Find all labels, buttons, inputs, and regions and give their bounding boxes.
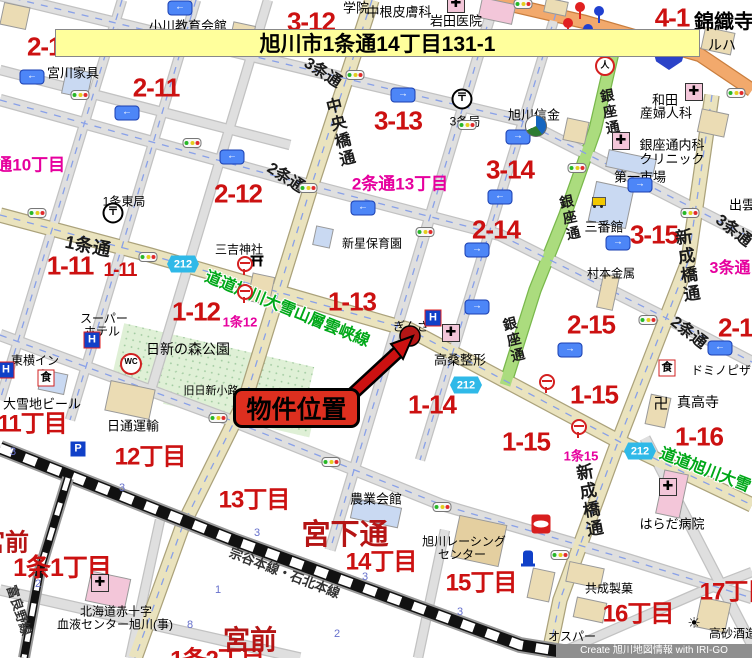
route-shield-212: 212 (167, 256, 199, 273)
one-way-arrow-icon: → (558, 343, 583, 358)
traffic-light-icon (139, 252, 158, 262)
poi-label: オスパー (548, 628, 596, 645)
building (697, 109, 728, 137)
lot-number-label: 3 (119, 482, 125, 494)
monument-icon (523, 551, 533, 566)
restaurant-icon: 食 (38, 370, 55, 387)
poi-label: 宮川家具 (47, 63, 99, 82)
traffic-light-icon (458, 120, 477, 130)
block-number-label: 2-11 (133, 73, 180, 104)
bus-route-dash (0, 215, 752, 505)
poi-label: 日新の森公園 (146, 339, 230, 359)
one-way-arrow-icon: ← (708, 341, 733, 356)
property-location-label: 物件位置 (246, 390, 346, 426)
address-label: 2条通13丁目 (352, 170, 448, 195)
shopping-icon (591, 195, 607, 207)
block-number-label: 1-15 (570, 380, 618, 411)
post-office-icon: 〒 (452, 89, 473, 110)
poi-label: 出雲 (729, 195, 752, 214)
hospital-icon: ✚ (91, 574, 109, 592)
property-location-callout: 物件位置 (233, 388, 360, 428)
traffic-light-icon (514, 0, 533, 9)
poi-label: クリニック (639, 149, 704, 168)
poi-label: 中根皮膚科 (366, 2, 431, 21)
route-shield-212: 212 (450, 377, 482, 394)
address-label: 1条12 (223, 312, 258, 331)
hospital-icon: ✚ (442, 324, 460, 342)
map-credit-text: Create 旭川地図情報 with IRI-GO (580, 645, 728, 656)
poi-label: 高砂酒造 (709, 625, 752, 642)
one-way-arrow-icon: ← (351, 201, 376, 216)
address-label: 3条通 (710, 254, 751, 278)
block-number-label: 2-14 (472, 215, 520, 246)
road-casing (0, 215, 752, 505)
hospital-icon: ✚ (447, 0, 465, 13)
poi-label: 旧日新小路 (184, 382, 239, 398)
poi-label: 学院 (343, 0, 369, 17)
bus-stop-icon (571, 419, 587, 435)
poi-label: 卍 (653, 393, 668, 414)
red-pin-icon (575, 2, 585, 12)
map-credit: Create 旭川地図情報 with IRI-GO (556, 644, 752, 658)
block-number-label: 2-12 (214, 179, 262, 210)
one-way-arrow-icon: → (465, 300, 490, 315)
block-number-label: 2-15 (567, 310, 615, 341)
one-way-arrow-icon: → (391, 88, 416, 103)
poi-label: 農業会館 (350, 489, 402, 508)
traffic-light-icon (183, 138, 202, 148)
bus-stop-icon (237, 284, 253, 300)
lot-number-label: 3 (254, 527, 260, 539)
one-way-arrow-icon: → (606, 236, 631, 251)
one-way-arrow-icon: ← (220, 150, 245, 165)
block-number-label: 1-12 (172, 297, 220, 328)
poi-label: 錦織寺 (694, 6, 752, 35)
post-office-icon: 〒 (103, 203, 124, 224)
block-number-label: 17丁目 (700, 572, 752, 607)
hospital-icon: ✚ (612, 132, 630, 150)
bank-icon (525, 115, 547, 137)
hotel-icon: H (84, 332, 101, 349)
toilet-icon: WC (120, 353, 142, 375)
one-way-arrow-icon: ← (168, 1, 193, 16)
route-shield-212: 212 (624, 443, 656, 460)
traffic-light-icon (299, 183, 318, 193)
hotel-icon: H (0, 362, 15, 379)
hospital-icon: ✚ (685, 83, 703, 101)
lot-number-label: 2 (35, 578, 41, 590)
district-label: 宮前 (0, 523, 29, 558)
poi-label: ルハ (708, 35, 736, 55)
address-banner-text: 旭川市1条通14丁目131-1 (260, 28, 496, 58)
block-number-label: 15丁目 (446, 563, 517, 598)
bus-stop-icon (539, 374, 555, 390)
block-number-label: 1-11 (104, 260, 137, 282)
traffic-light-icon (727, 88, 746, 98)
poi-label: 産婦人科 (640, 103, 692, 122)
poi-label: 村本金属 (587, 265, 635, 282)
poi-label: 東横イン (11, 352, 59, 369)
one-way-arrow-icon: ← (115, 106, 140, 121)
red-pin-icon (563, 18, 573, 28)
bus-stop-icon (237, 256, 253, 272)
district-label: 宮下通 (301, 511, 388, 553)
traffic-light-icon (28, 208, 47, 218)
traffic-light-icon (322, 457, 341, 467)
poi-label: 真高寺 (677, 392, 719, 412)
road (0, 215, 752, 505)
hotel-icon: H (425, 310, 442, 327)
lot-number-label: 3 (10, 446, 16, 458)
traffic-light-icon (209, 413, 228, 423)
parking-icon: P (71, 442, 86, 457)
address-banner: 旭川市1条通14丁目131-1 (55, 29, 700, 57)
gas-station-icon (532, 515, 551, 534)
block-number-label: 1-15 (502, 427, 550, 458)
traffic-light-icon (639, 315, 658, 325)
poi-label: 三番館 (584, 217, 623, 236)
traffic-light-icon (416, 227, 435, 237)
traffic-light-icon (681, 208, 700, 218)
poi-label: ドミノピザ (691, 362, 751, 379)
poi-label: 日通運輸 (107, 416, 159, 435)
block-number-label: 2-16 (718, 313, 752, 344)
block-number-label: 3-14 (486, 155, 534, 186)
poi-label: 共成製菓 (585, 580, 633, 597)
one-way-arrow-icon: ← (20, 70, 45, 85)
one-way-arrow-icon: → (628, 178, 653, 193)
lot-number-label: 8 (187, 619, 193, 631)
poi-label: 血液センター旭川(事) (57, 616, 173, 633)
restaurant-icon: 食 (659, 360, 676, 377)
poi-label: センター (438, 546, 486, 563)
block-number-label: 13丁目 (219, 480, 290, 515)
poi-label: 岩田医院 (430, 11, 482, 30)
blue-pin-icon (594, 6, 604, 16)
pedestrian-crossing-icon: 人 (595, 56, 615, 76)
lot-number-label: 1 (215, 584, 221, 596)
traffic-light-icon (433, 502, 452, 512)
block-number-label: 16丁目 (603, 594, 674, 629)
traffic-light-icon (71, 90, 90, 100)
traffic-light-icon (346, 70, 365, 80)
traffic-light-icon (568, 163, 587, 173)
brewery-icon: ☀ (687, 614, 700, 632)
one-way-arrow-icon: → (465, 243, 490, 258)
district-label: 宮前 (223, 619, 277, 658)
building (313, 226, 334, 248)
address-label: 2条通10丁目 (0, 151, 65, 176)
building (527, 568, 555, 602)
hospital-icon: ✚ (659, 478, 677, 496)
poi-label: 高桑整形 (434, 350, 486, 369)
block-number-label: 1-14 (408, 390, 456, 421)
traffic-light-icon (551, 550, 570, 560)
poi-label: 大雪地ビール (3, 394, 81, 413)
lot-number-label: 3 (457, 606, 463, 618)
block-number-label: 12丁目 (115, 437, 186, 472)
map-canvas[interactable]: 旭川市1条通14丁目131-1 物件位置 Create 旭川地図情報 with … (0, 0, 752, 658)
lot-number-label: 3 (362, 571, 368, 583)
poi-label: はらだ病院 (639, 514, 704, 533)
one-way-arrow-icon: ← (488, 190, 513, 205)
block-number-label: 3-13 (374, 106, 422, 137)
building (0, 3, 30, 30)
lot-number-label: 2 (334, 628, 340, 640)
poi-label: 新星保育園 (342, 235, 402, 252)
building (563, 118, 589, 144)
